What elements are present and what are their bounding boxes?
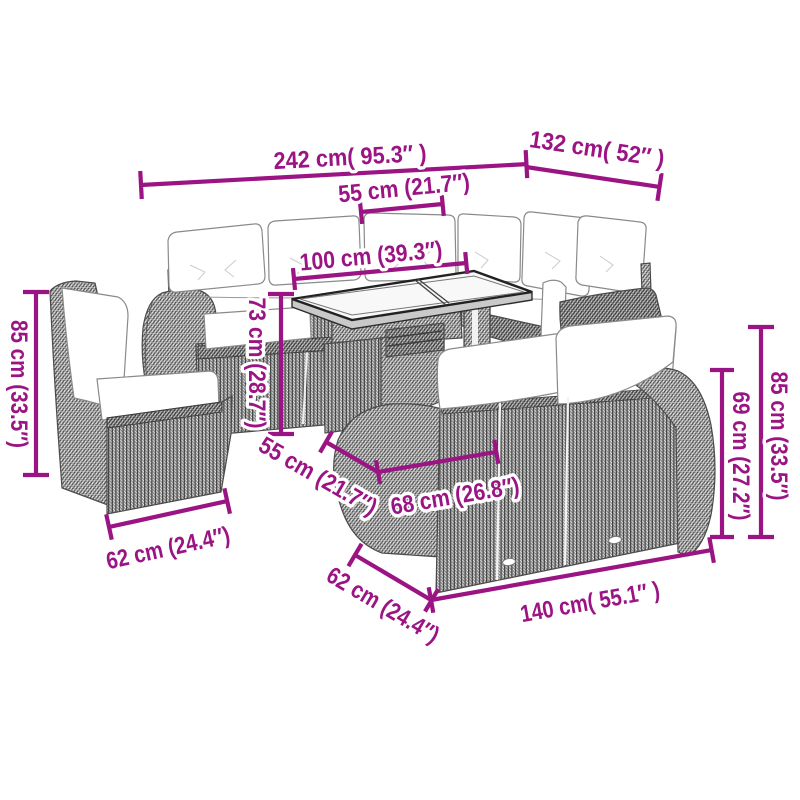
svg-text:85 cm (33.5″): 85 cm (33.5″) <box>765 372 792 501</box>
svg-text:69 cm (27.2″): 69 cm (27.2″) <box>727 392 754 521</box>
svg-text:85 cm (33.5″): 85 cm (33.5″) <box>5 320 32 448</box>
svg-text:73 cm (28.7″): 73 cm (28.7″) <box>243 298 270 429</box>
